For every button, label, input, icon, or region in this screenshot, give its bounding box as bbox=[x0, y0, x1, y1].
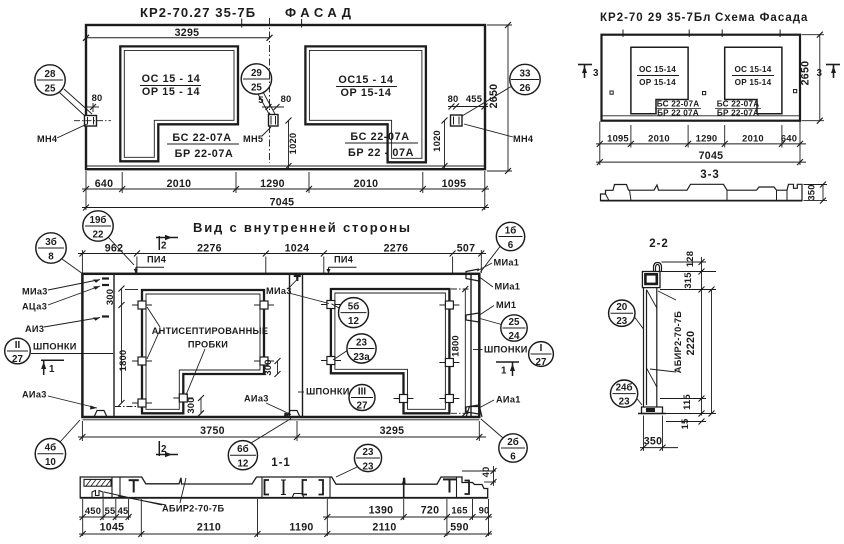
svg-text:23: 23 bbox=[363, 447, 374, 458]
svg-text:1800: 1800 bbox=[450, 335, 461, 357]
svg-text:6: 6 bbox=[510, 452, 516, 463]
svg-text:15: 15 bbox=[679, 419, 690, 430]
svg-text:2-2: 2-2 bbox=[649, 238, 669, 250]
svg-text:90: 90 bbox=[479, 505, 490, 516]
svg-text:БР 22-07А: БР 22-07А bbox=[175, 148, 234, 160]
svg-text:1390: 1390 bbox=[369, 505, 394, 517]
svg-text:128: 128 bbox=[684, 251, 695, 267]
svg-text:2010: 2010 bbox=[648, 133, 670, 144]
svg-text:ОР 15-14: ОР 15-14 bbox=[639, 78, 676, 87]
svg-text:2010: 2010 bbox=[167, 178, 192, 190]
svg-text:БР 22-07А: БР 22-07А bbox=[717, 109, 759, 118]
svg-text:300: 300 bbox=[185, 397, 196, 413]
svg-text:ОР 15 - 14: ОР 15 - 14 bbox=[142, 86, 200, 98]
svg-text:350: 350 bbox=[644, 436, 663, 448]
svg-text:ПИ4: ПИ4 bbox=[147, 255, 167, 265]
svg-text:20: 20 bbox=[616, 302, 627, 313]
svg-text:80: 80 bbox=[92, 92, 103, 103]
svg-text:315: 315 bbox=[682, 272, 693, 288]
svg-text:3750: 3750 bbox=[200, 425, 225, 437]
svg-text:300: 300 bbox=[262, 359, 273, 375]
svg-text:350: 350 bbox=[806, 184, 817, 200]
svg-text:ОС15 - 14: ОС15 - 14 bbox=[338, 74, 393, 86]
svg-text:3б: 3б bbox=[45, 237, 57, 248]
svg-text:2010: 2010 bbox=[354, 178, 379, 190]
svg-text:40: 40 bbox=[480, 467, 491, 478]
svg-text:БС 22-07А: БС 22-07А bbox=[172, 132, 231, 144]
svg-text:23а: 23а bbox=[353, 352, 370, 363]
svg-text:2276: 2276 bbox=[197, 243, 222, 255]
svg-text:28: 28 bbox=[45, 69, 56, 80]
svg-text:24: 24 bbox=[509, 331, 520, 342]
svg-text:АИа1: АИа1 bbox=[496, 395, 521, 405]
svg-text:КР2-70 29 35-7Бл: КР2-70 29 35-7Бл bbox=[600, 12, 711, 24]
svg-text:2010: 2010 bbox=[742, 133, 764, 144]
svg-text:7045: 7045 bbox=[699, 150, 724, 162]
svg-text:12: 12 bbox=[348, 316, 359, 327]
svg-text:МИа3: МИа3 bbox=[22, 287, 48, 297]
svg-text:23: 23 bbox=[356, 338, 367, 349]
svg-text:ОР 15-14: ОР 15-14 bbox=[735, 78, 772, 87]
svg-text:МИа1: МИа1 bbox=[495, 282, 521, 292]
svg-text:1020: 1020 bbox=[431, 130, 442, 152]
svg-text:1800: 1800 bbox=[117, 350, 128, 372]
svg-text:640: 640 bbox=[95, 178, 114, 190]
svg-text:6б: 6б bbox=[237, 444, 249, 455]
svg-text:1: 1 bbox=[49, 364, 55, 375]
svg-text:507: 507 bbox=[457, 243, 476, 255]
svg-text:1020: 1020 bbox=[287, 133, 298, 155]
svg-text:1045: 1045 bbox=[100, 522, 125, 534]
svg-text:25: 25 bbox=[45, 84, 56, 95]
svg-text:II: II bbox=[15, 340, 21, 351]
svg-text:АИ3: АИ3 bbox=[25, 324, 44, 334]
svg-text:Схема Фасада: Схема Фасада bbox=[715, 12, 808, 24]
svg-text:2220: 2220 bbox=[685, 331, 697, 356]
svg-text:АБИР2-70-7Б: АБИР2-70-7Б bbox=[673, 311, 683, 374]
svg-text:26: 26 bbox=[520, 83, 531, 94]
svg-text:МН4: МН4 bbox=[513, 134, 534, 144]
svg-text:МИа1: МИа1 bbox=[494, 258, 520, 268]
svg-text:1095: 1095 bbox=[607, 133, 629, 144]
svg-text:2110: 2110 bbox=[197, 522, 221, 534]
svg-text:23: 23 bbox=[619, 397, 630, 408]
svg-text:1190: 1190 bbox=[289, 522, 313, 534]
svg-text:1095: 1095 bbox=[442, 178, 467, 190]
svg-text:1290: 1290 bbox=[696, 133, 718, 144]
svg-text:2б: 2б bbox=[507, 437, 519, 448]
svg-text:6: 6 bbox=[508, 240, 514, 251]
svg-text:2650: 2650 bbox=[800, 61, 812, 86]
svg-text:22: 22 bbox=[93, 230, 104, 241]
svg-text:450: 450 bbox=[85, 505, 101, 516]
svg-text:БС 22-07А: БС 22-07А bbox=[717, 100, 760, 109]
svg-text:19б: 19б bbox=[90, 215, 107, 226]
svg-text:12: 12 bbox=[237, 459, 248, 470]
svg-text:Вид с внутренней стороны: Вид с внутренней стороны bbox=[193, 220, 412, 235]
svg-text:3: 3 bbox=[593, 68, 599, 79]
svg-text:720: 720 bbox=[421, 505, 440, 517]
svg-text:80: 80 bbox=[448, 93, 459, 104]
svg-text:АЦа3: АЦа3 bbox=[22, 302, 47, 312]
svg-text:ШПОНКИ: ШПОНКИ bbox=[484, 345, 528, 355]
svg-text:3295: 3295 bbox=[380, 425, 405, 437]
svg-text:10: 10 bbox=[45, 457, 56, 468]
svg-text:АБИР2-70-7Б: АБИР2-70-7Б bbox=[162, 504, 225, 514]
svg-text:III: III bbox=[358, 387, 366, 398]
svg-text:3-3: 3-3 bbox=[700, 169, 720, 181]
svg-text:165: 165 bbox=[451, 505, 467, 516]
svg-text:КР2-70.27 35-7Б: КР2-70.27 35-7Б bbox=[140, 5, 256, 20]
svg-text:МИа3: МИа3 bbox=[266, 286, 292, 296]
svg-text:ФАСАД: ФАСАД bbox=[285, 5, 356, 20]
svg-text:29: 29 bbox=[251, 68, 262, 79]
svg-text:23: 23 bbox=[616, 316, 627, 327]
svg-text:МИ1: МИ1 bbox=[496, 300, 516, 310]
svg-text:БС 22-07А: БС 22-07А bbox=[657, 100, 700, 109]
svg-text:1: 1 bbox=[501, 366, 507, 377]
svg-text:115: 115 bbox=[681, 394, 692, 410]
svg-text:МН4: МН4 bbox=[37, 134, 58, 144]
svg-text:АНТИСЕПТИРОВАННЫЕ: АНТИСЕПТИРОВАННЫЕ bbox=[152, 326, 269, 336]
svg-text:24б: 24б bbox=[616, 383, 633, 394]
svg-text:80: 80 bbox=[281, 93, 292, 104]
svg-text:3295: 3295 bbox=[175, 27, 200, 39]
svg-text:5б: 5б bbox=[348, 302, 360, 313]
svg-text:1024: 1024 bbox=[285, 243, 310, 255]
svg-text:27: 27 bbox=[536, 357, 547, 368]
svg-text:2110: 2110 bbox=[372, 522, 396, 534]
svg-text:590: 590 bbox=[450, 522, 469, 534]
svg-text:7045: 7045 bbox=[270, 197, 295, 209]
svg-text:АИа3: АИа3 bbox=[244, 394, 269, 404]
svg-text:ОС 15-14: ОС 15-14 bbox=[734, 65, 771, 74]
svg-text:25: 25 bbox=[509, 317, 520, 328]
svg-text:БР 22 - 07А: БР 22 - 07А bbox=[348, 147, 414, 159]
svg-text:27: 27 bbox=[357, 401, 368, 412]
svg-text:2650: 2650 bbox=[488, 84, 500, 109]
svg-text:2276: 2276 bbox=[384, 243, 409, 255]
svg-text:1-1: 1-1 bbox=[271, 457, 291, 469]
svg-text:455: 455 bbox=[466, 93, 482, 104]
svg-text:ОС 15 - 14: ОС 15 - 14 bbox=[142, 73, 201, 85]
svg-text:25: 25 bbox=[251, 83, 262, 94]
svg-text:1290: 1290 bbox=[260, 178, 285, 190]
svg-text:8: 8 bbox=[48, 252, 54, 263]
svg-text:ШПОНКИ: ШПОНКИ bbox=[33, 342, 77, 352]
svg-text:ПИ4: ПИ4 bbox=[334, 255, 354, 265]
svg-text:ОР 15-14: ОР 15-14 bbox=[340, 87, 391, 99]
svg-text:ОС 15-14: ОС 15-14 bbox=[639, 65, 676, 74]
svg-text:2: 2 bbox=[161, 444, 167, 455]
svg-text:23: 23 bbox=[363, 462, 374, 473]
svg-text:ШПОНКИ: ШПОНКИ bbox=[306, 387, 350, 397]
svg-text:I: I bbox=[540, 343, 543, 354]
svg-text:45: 45 bbox=[118, 505, 129, 516]
svg-text:ПРОБКИ: ПРОБКИ bbox=[188, 340, 228, 350]
svg-text:БС 22-07А: БС 22-07А bbox=[350, 131, 409, 143]
svg-text:АИа3: АИа3 bbox=[22, 390, 47, 400]
svg-text:640: 640 bbox=[781, 133, 797, 144]
svg-text:1б: 1б bbox=[505, 226, 517, 237]
svg-text:2: 2 bbox=[161, 241, 167, 252]
svg-text:БР 22 07А: БР 22 07А bbox=[657, 109, 699, 118]
svg-text:33: 33 bbox=[520, 69, 531, 80]
svg-text:27: 27 bbox=[12, 354, 23, 365]
svg-text:4б: 4б bbox=[45, 443, 57, 454]
svg-text:300: 300 bbox=[104, 289, 115, 305]
svg-text:55: 55 bbox=[105, 505, 116, 516]
svg-text:962: 962 bbox=[105, 243, 124, 255]
svg-text:МН5: МН5 bbox=[243, 134, 263, 144]
